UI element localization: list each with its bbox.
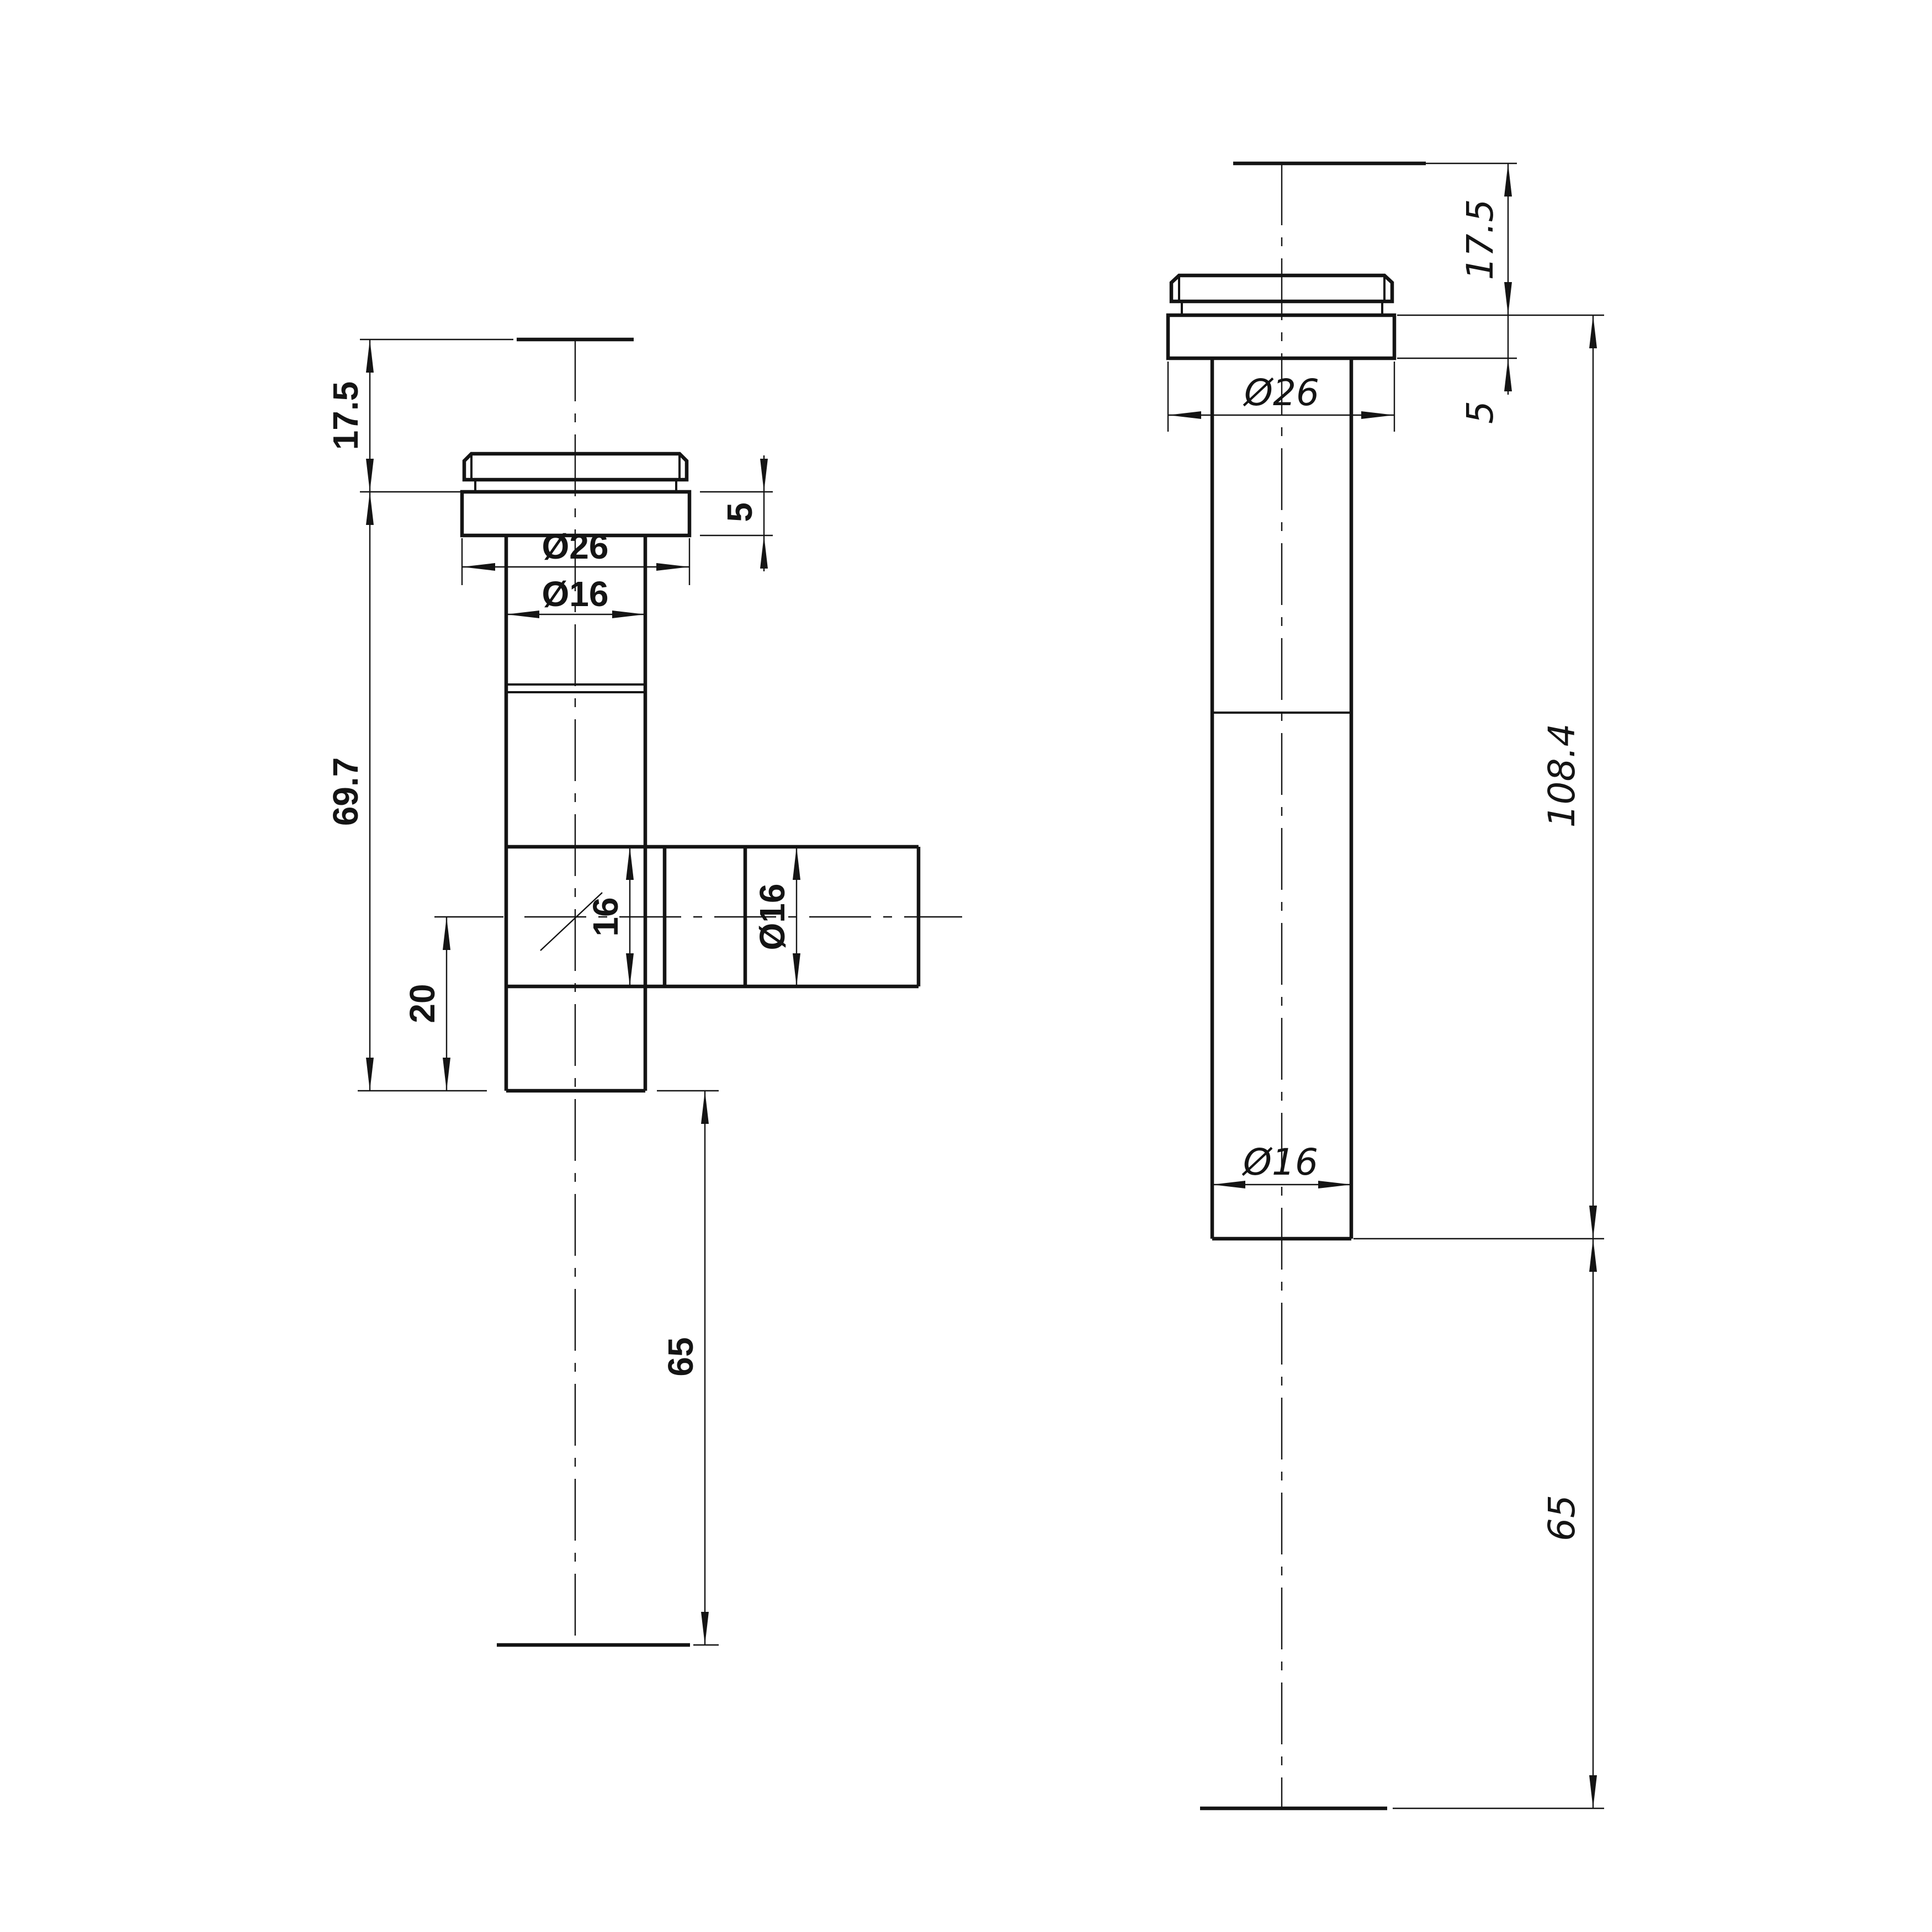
dim-label-5-right: 5 <box>1459 401 1501 424</box>
dim-label-17-5-right: 17.5 <box>1459 199 1501 280</box>
dim-label-69-7: 69.7 <box>326 757 365 826</box>
left-view-tee-fitting: 17.5 69.7 5 Ø26 Ø16 16 Ø16 20 65 <box>326 339 962 1645</box>
dim-label-dia16-right: Ø16 <box>1241 1141 1318 1183</box>
dim-label-dia26-left: Ø26 <box>542 527 609 566</box>
dim-label-dia16-left: Ø16 <box>542 574 609 614</box>
dim-label-17-5-left: 17.5 <box>326 381 365 450</box>
dim-label-branch-16: 16 <box>586 897 625 936</box>
dim-label-dia26-right: Ø26 <box>1243 371 1319 414</box>
technical-drawing-canvas: 17.5 69.7 5 Ø26 Ø16 16 Ø16 20 65 <box>0 0 1932 1932</box>
dim-label-branch-dia16: Ø16 <box>752 884 792 951</box>
dim-label-5-left: 5 <box>720 502 760 522</box>
drawing-sheet: 17.5 69.7 5 Ø26 Ø16 16 Ø16 20 65 <box>0 0 1932 1932</box>
dim-label-20: 20 <box>402 984 442 1023</box>
dim-label-65-left: 65 <box>661 1337 700 1376</box>
dim-label-65-right: 65 <box>1541 1495 1583 1541</box>
right-view-straight-fitting: 17.5 5 Ø26 108.4 Ø16 65 <box>1168 163 1604 1808</box>
dim-label-108-4: 108.4 <box>1541 724 1583 828</box>
